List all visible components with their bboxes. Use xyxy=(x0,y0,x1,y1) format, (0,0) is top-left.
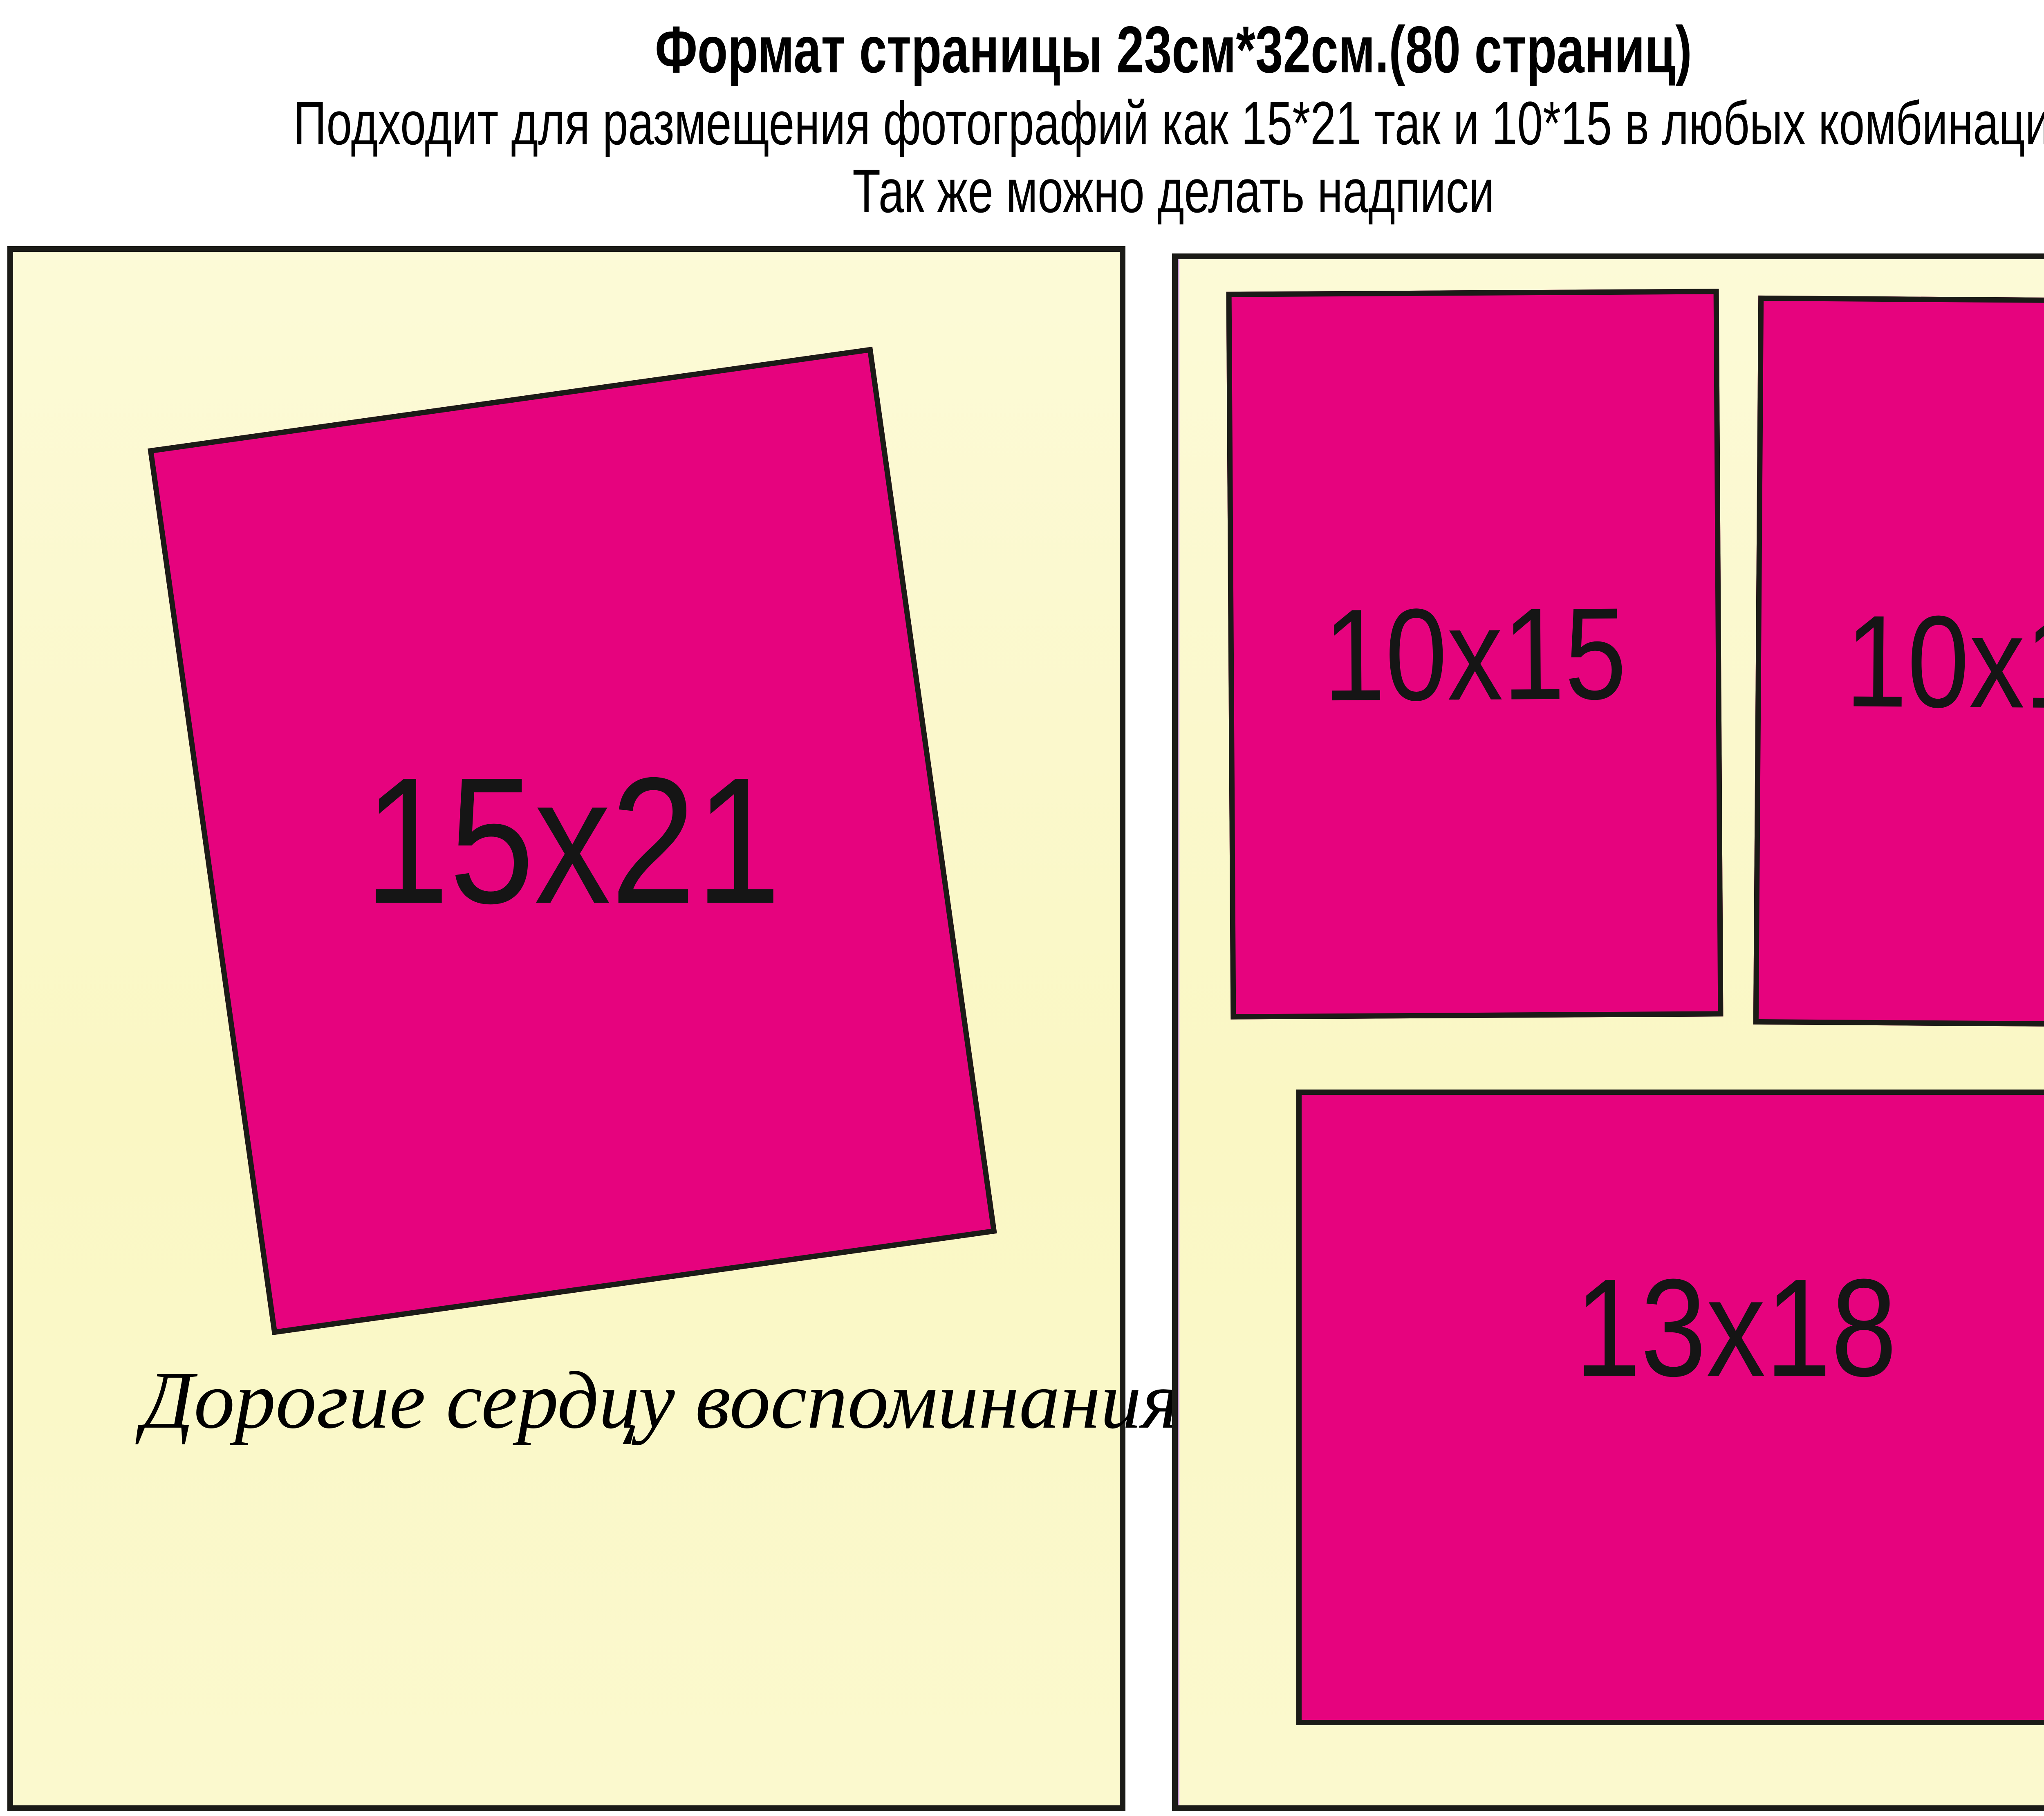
photo-size-label-10x15-left: 10x15 xyxy=(1323,588,1627,721)
header-block: Формат страницы 23см*32см.(80 страниц) П… xyxy=(0,11,2044,225)
photo-placeholder-13x18: 13x18 xyxy=(1296,1090,2044,1725)
header-subtitle: Подходит для размещения фотографий как 1… xyxy=(294,89,2044,157)
header-note: Так же можно делать надписи xyxy=(294,157,2044,225)
photo-size-label-13x18: 13x18 xyxy=(1575,1258,1897,1397)
page-title: Формат страницы 23см*32см.(80 страниц) xyxy=(294,11,2044,89)
album-page-right: 10x15 10x15 13x18 xyxy=(1172,253,2044,1811)
album-page-left: 15x21 Дорогие сердцу воспоминания... xyxy=(7,246,1125,1811)
photo-placeholder-10x15-left: 10x15 xyxy=(1226,289,1724,1019)
photo-size-label-10x15-right: 10x15 xyxy=(1845,595,2044,728)
photo-placeholder-15x21: 15x21 xyxy=(148,347,997,1335)
photo-placeholder-10x15-right: 10x15 xyxy=(1753,296,2044,1028)
caption-text: Дорогие сердцу воспоминания... xyxy=(142,1356,1241,1446)
album-format-poster: Формат страницы 23см*32см.(80 страниц) П… xyxy=(0,0,2044,1816)
photo-size-label-15x21: 15x21 xyxy=(364,751,780,931)
